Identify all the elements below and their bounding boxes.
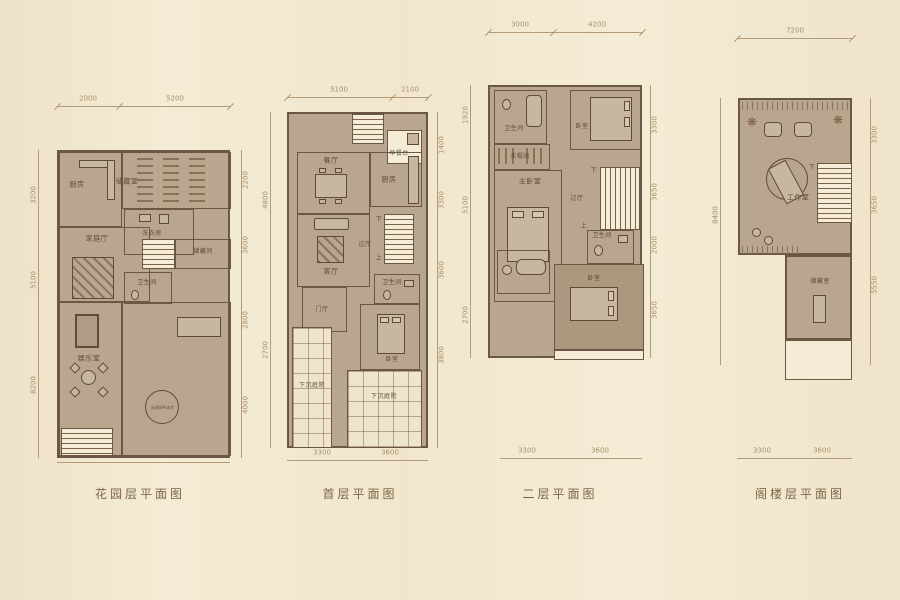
armchair-icon — [794, 122, 812, 137]
caption-attic: 阁楼层平面图 — [710, 485, 890, 502]
wine-rack-icon — [189, 158, 205, 204]
dim-label: 5100 — [31, 271, 38, 289]
pillow-icon — [380, 317, 389, 323]
dim-label: 5100 — [463, 196, 470, 214]
caption-garden: 花园层平面图 — [30, 485, 250, 502]
billiard-table-icon — [75, 314, 99, 348]
chair-icon — [319, 199, 326, 204]
toilet-icon — [131, 290, 139, 300]
terrace-steps-icon — [61, 428, 113, 456]
roof-slope-area — [785, 340, 852, 380]
room-label-studio: 工作室 — [787, 195, 810, 202]
sink-icon — [404, 280, 414, 287]
room-label-bedroom: 卧室 — [385, 357, 398, 363]
room-label-recreation: 娱乐室 — [78, 356, 101, 363]
dim-line — [437, 112, 438, 448]
rug-icon — [317, 236, 344, 263]
sofa-icon — [314, 218, 349, 230]
room-label-closet: 衣帽间 — [510, 154, 530, 160]
stairs-down-label: 下 — [809, 165, 816, 171]
dim-label: 2000 — [79, 96, 97, 103]
pillow-icon — [624, 117, 630, 127]
dim-line — [57, 462, 230, 463]
dim-label: 3600 — [439, 261, 446, 279]
dim-label: 8400 — [713, 206, 720, 224]
roof-edge-hatch — [742, 246, 802, 254]
plan-second-floor: 3000 4200 3300 3600 1920 5100 2700 3300 … — [460, 20, 660, 500]
dim-line — [287, 460, 428, 461]
pillow-icon — [624, 101, 630, 111]
dim-label: 3800 — [439, 346, 446, 364]
plant-icon: ❋ — [833, 114, 843, 126]
toilet-icon — [383, 290, 391, 300]
stairs-down-label: 下 — [591, 168, 598, 174]
first-floor-footprint: 早餐台 餐厅 厨房 客厅 过厅 下 上 门厅 卫生间 — [287, 112, 428, 448]
table-icon — [764, 236, 773, 245]
table-icon — [752, 228, 761, 237]
dim-label: 5200 — [166, 96, 184, 103]
room-label-master: 主卧室 — [519, 179, 542, 186]
dim-label: 2000 — [652, 236, 659, 254]
counter-icon — [408, 156, 419, 204]
dim-line — [38, 150, 39, 458]
room-label-bath: 卫生间 — [382, 280, 402, 286]
dim-label: 3650 — [652, 301, 659, 319]
jacuzzi-icon — [502, 265, 512, 275]
pillow-icon — [512, 211, 524, 218]
room-label-hall: 过厅 — [358, 242, 371, 248]
room-label-storage: 储藏室 — [116, 179, 139, 186]
dim-label: 3300 — [753, 448, 771, 455]
room-label-bedroom-bottom: 卧室 — [587, 276, 600, 282]
attic-storage-footprint: 储藏室 — [785, 255, 852, 340]
stairs-icon — [142, 239, 175, 269]
dim-label: 3300 — [518, 448, 536, 455]
room-label-foyer: 门厅 — [315, 307, 328, 313]
sink-icon — [618, 235, 628, 243]
room-label-kitchen: 厨房 — [70, 182, 85, 189]
washer-icon — [159, 214, 169, 224]
room-label-stair-storage: 储藏间 — [193, 249, 213, 255]
dim-label: 5550 — [872, 276, 879, 294]
room-label-bedroom-top: 卧室 — [575, 124, 588, 130]
room-label-bath-bottom: 卫生间 — [592, 233, 612, 239]
wine-rack-icon — [163, 158, 179, 204]
pillow-icon — [532, 211, 544, 218]
bathtub-icon — [516, 259, 546, 275]
dim-label: 3300 — [439, 191, 446, 209]
pillow-icon — [392, 317, 401, 323]
dim-label: 3650 — [652, 183, 659, 201]
bathtub-icon — [526, 95, 542, 127]
counter-icon — [107, 160, 115, 200]
floorplan-sheet: 2000 5200 2000 5200 3200 5100 8200 2200 … — [0, 0, 900, 600]
room-label-dining: 餐厅 — [324, 158, 339, 165]
stove-icon — [407, 133, 419, 145]
dim-label: 4200 — [588, 22, 606, 29]
courtyard-grid — [347, 370, 422, 448]
sink-icon — [139, 214, 151, 222]
tick — [849, 35, 856, 42]
dim-label: 3600 — [243, 236, 250, 254]
dim-label: 3300 — [313, 450, 331, 457]
room-label-hall: 过厅 — [570, 196, 583, 202]
room-label-family: 家庭厅 — [86, 236, 109, 243]
dim-line — [720, 98, 721, 365]
pillow-icon — [608, 291, 614, 301]
dining-table-icon — [315, 174, 347, 198]
caption-second-floor: 二层平面图 — [460, 485, 660, 502]
room-label-living: 客厅 — [324, 269, 339, 276]
stairs-icon — [384, 214, 414, 264]
chair-icon — [319, 168, 326, 173]
dim-label: 3600 — [813, 448, 831, 455]
dim-line — [470, 85, 471, 358]
room-label-kitchen: 厨房 — [382, 177, 397, 184]
rug-icon — [72, 257, 114, 299]
courtyard-label: 下沉庭院 — [371, 394, 397, 400]
dim-label: 4800 — [263, 191, 270, 209]
tick — [425, 94, 432, 101]
tick — [639, 29, 646, 36]
dim-line — [737, 458, 852, 459]
stairs-icon — [817, 163, 852, 223]
dim-label: 3300 — [652, 116, 659, 134]
garden-footprint: 厨房 储藏室 洗衣房 家庭厅 储藏间 卫生间 — [57, 150, 230, 458]
spa-circle-label: 泳池SPA水疗 — [150, 404, 173, 410]
spa-circle: 泳池SPA水疗 — [145, 390, 179, 424]
dim-label: 2700 — [463, 306, 470, 324]
stairs-icon — [352, 114, 384, 144]
stairs-icon — [600, 167, 640, 230]
wine-rack-icon — [137, 158, 153, 204]
toilet-icon — [502, 99, 511, 110]
caption-first-floor: 首层平面图 — [265, 485, 455, 502]
dim-label: 3600 — [591, 448, 609, 455]
plan-first-floor: 5100 2100 3300 3600 4800 2700 1400 3300 … — [265, 60, 455, 505]
dim-label: 3650 — [872, 196, 879, 214]
dim-line — [57, 106, 230, 107]
room-label-bath: 卫生间 — [137, 280, 157, 286]
room-bath — [124, 272, 172, 304]
pillow-icon — [608, 306, 614, 316]
plan-attic: 7200 3300 3600 8400 3300 3650 5550 ❋ ❋ 工… — [710, 25, 890, 500]
plan-garden: 2000 5200 2000 5200 3200 5100 8200 2200 … — [30, 85, 250, 505]
table-icon — [81, 370, 96, 385]
dim-line — [737, 38, 852, 39]
dim-label: 7200 — [786, 28, 804, 35]
dim-label: 3600 — [381, 450, 399, 457]
second-floor-footprint: 卫生间 衣帽间 卧室 主卧室 过厅 下 上 卫生间 — [488, 85, 642, 358]
dim-label: 8200 — [31, 376, 38, 394]
dim-label: 1400 — [439, 136, 446, 154]
dim-line — [270, 112, 271, 448]
balcony — [554, 350, 644, 360]
room-label-attic-storage: 储藏室 — [810, 279, 830, 285]
courtyard-label: 下沉庭院 — [299, 383, 325, 389]
roof-edge-hatch — [742, 102, 848, 110]
dim-label: 2700 — [263, 341, 270, 359]
dim-label: 3300 — [872, 126, 879, 144]
dim-label: 1920 — [463, 106, 470, 124]
dim-label: 2800 — [243, 311, 250, 329]
dim-label: 4000 — [243, 396, 250, 414]
plant-icon: ❋ — [747, 116, 757, 128]
stairs-up-label: 上 — [376, 256, 383, 262]
chair-icon — [335, 199, 342, 204]
dim-line — [287, 97, 428, 98]
attic-studio-footprint: ❋ ❋ 工作室 下 — [738, 98, 852, 255]
stairs-down-label: 下 — [376, 217, 383, 223]
chair-icon — [335, 168, 342, 173]
tick — [227, 103, 234, 110]
dim-label: 5100 — [330, 87, 348, 94]
dim-line — [488, 32, 642, 33]
dim-label: 3200 — [31, 186, 38, 204]
cabinet-icon — [813, 295, 826, 323]
dim-label: 2100 — [401, 87, 419, 94]
dim-label: 2200 — [243, 171, 250, 189]
room-label-bath-top: 卫生间 — [504, 126, 524, 132]
dim-label: 3000 — [511, 22, 529, 29]
toilet-icon — [594, 245, 603, 256]
dim-line — [500, 458, 642, 459]
massage-bed-icon — [177, 317, 221, 337]
armchair-icon — [764, 122, 782, 137]
